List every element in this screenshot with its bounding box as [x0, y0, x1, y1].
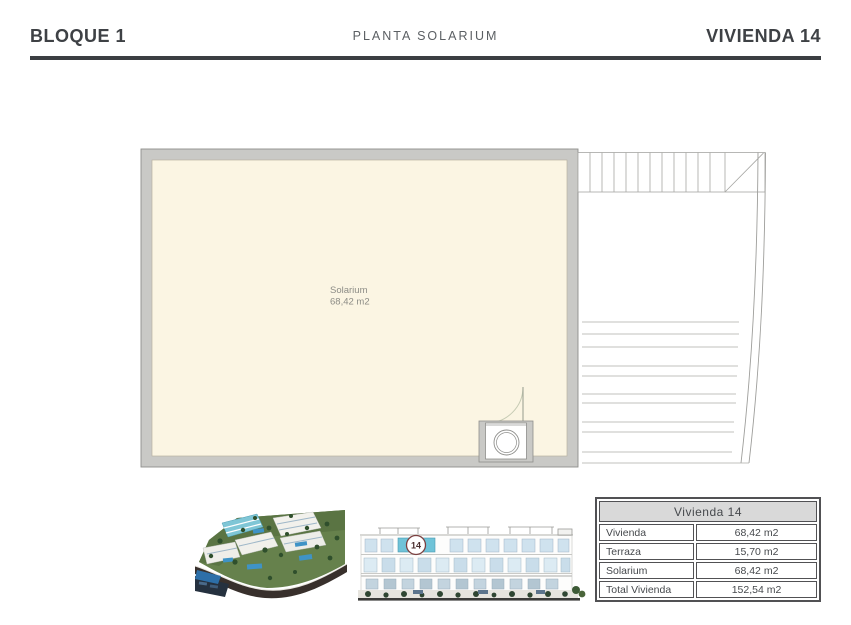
unit-title: VIVIENDA 14	[706, 26, 821, 47]
sheet-header: BLOQUE 1 PLANTA SOLARIUM VIVIENDA 14	[30, 20, 821, 52]
row-label: Total Vivienda	[599, 581, 694, 598]
row-label: Solarium	[599, 562, 694, 579]
room-area-label: 68,42 m2	[330, 297, 370, 308]
surface-table: Vivienda 14 Vivienda 68,42 m2 Terraza 15…	[595, 497, 821, 602]
plan-sheet-page: BLOQUE 1 PLANTA SOLARIUM VIVIENDA 14	[0, 0, 851, 625]
solarium-floor	[152, 160, 567, 456]
middle-floor-windows	[364, 558, 570, 572]
table-row: Solarium 68,42 m2	[599, 562, 817, 579]
unit-badge: 14	[407, 536, 426, 555]
alcove	[479, 421, 533, 462]
stair-lower-flight	[582, 322, 749, 463]
table-row: Total Vivienda 152,54 m2	[599, 581, 817, 598]
surface-summary: Vivienda 14 Vivienda 68,42 m2 Terraza 15…	[595, 497, 821, 602]
floor-plan-drawing: Solarium 68,42 m2	[130, 140, 790, 485]
row-value: 15,70 m2	[696, 543, 817, 560]
stair-upper-flight	[578, 153, 765, 193]
block-title: BLOQUE 1	[30, 26, 126, 47]
table-row: Terraza 15,70 m2	[599, 543, 817, 560]
table-row: Vivienda 68,42 m2	[599, 524, 817, 541]
row-label: Vivienda	[599, 524, 694, 541]
lower-floor-windows	[366, 579, 558, 589]
aerial-site-render	[195, 500, 350, 603]
row-value: 68,42 m2	[696, 524, 817, 541]
row-value: 68,42 m2	[696, 562, 817, 579]
row-label: Terraza	[599, 543, 694, 560]
roof-pergolas	[378, 527, 572, 535]
plan-title: PLANTA SOLARIUM	[353, 29, 499, 43]
building-elevation: 14	[358, 524, 606, 608]
alcove-basin-icon	[494, 430, 519, 455]
room-name-label: Solarium	[330, 285, 368, 296]
unit-badge-number: 14	[411, 541, 421, 551]
table-title: Vivienda 14	[599, 501, 817, 522]
row-value: 152,54 m2	[696, 581, 817, 598]
curved-outer-wall	[741, 153, 766, 464]
header-rule	[30, 56, 821, 60]
